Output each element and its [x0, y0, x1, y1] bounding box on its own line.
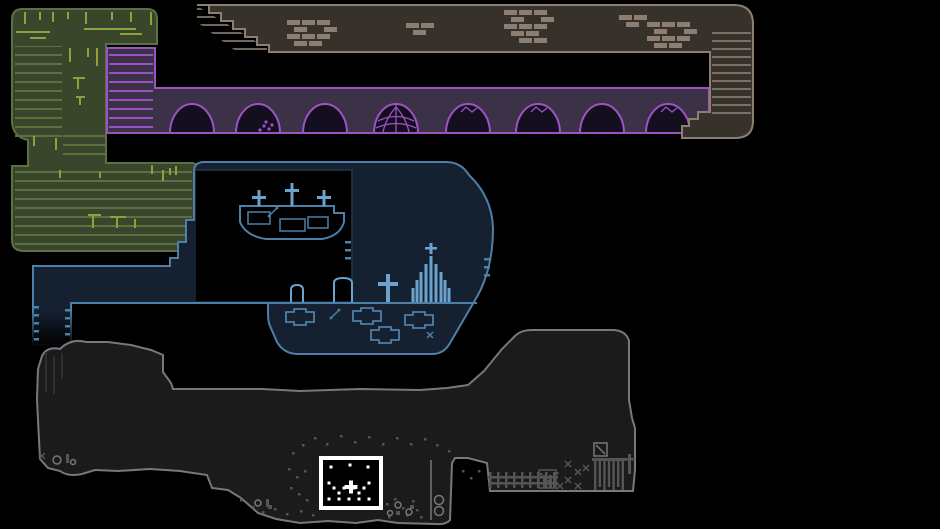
purple-hatch-arm [109, 51, 153, 130]
brick [654, 29, 667, 34]
brick [511, 31, 524, 36]
green-hatch-band [15, 167, 192, 249]
cathedral-spire [425, 264, 428, 302]
ladder-dash [484, 266, 490, 269]
rubble-dot [274, 508, 277, 511]
brick [317, 34, 330, 39]
rubble-dot [288, 468, 291, 471]
rubble-dot [340, 435, 343, 438]
rubble-dot [394, 498, 397, 501]
vine [87, 48, 89, 57]
fence-post [497, 472, 500, 488]
bone-post [266, 499, 269, 507]
marker-dot [348, 498, 351, 501]
vine [39, 12, 41, 20]
rubble-dot [292, 452, 295, 455]
rubble-dot [540, 473, 543, 476]
rubble-dot [296, 476, 299, 479]
rubble-dot [386, 503, 389, 506]
brick [519, 24, 532, 29]
cross [285, 189, 299, 192]
player-plus [345, 485, 358, 489]
brick [677, 36, 690, 41]
vine [69, 48, 71, 62]
marker-dot [338, 498, 341, 501]
marker-dot [328, 498, 331, 501]
vine [77, 78, 79, 89]
grave-cross [628, 454, 631, 474]
brick [511, 17, 524, 22]
rubble-dot [304, 470, 307, 473]
fence-post [513, 472, 516, 488]
ladder-dash [65, 309, 70, 312]
brick [421, 23, 434, 28]
cathedral-spire [440, 272, 443, 302]
fence-post [521, 472, 524, 488]
rubble-dot [396, 437, 399, 440]
brick [504, 10, 517, 15]
vine [150, 12, 152, 25]
brick [677, 22, 690, 27]
cathedral-spire [448, 288, 451, 302]
vine [130, 12, 132, 22]
vine [24, 12, 26, 24]
brick [302, 34, 315, 39]
bone [338, 309, 341, 312]
vine [116, 217, 118, 228]
fence-post [529, 472, 532, 488]
vine [59, 170, 61, 178]
rubble-pile [258, 128, 261, 131]
rubble-dot [314, 437, 317, 440]
bone-post [66, 454, 69, 463]
marker-dot [367, 466, 370, 469]
crypt-slot [549, 475, 552, 488]
brick [324, 27, 337, 32]
current-room-marker [321, 458, 381, 508]
vine [96, 48, 98, 66]
rubble-dot [416, 509, 419, 512]
brick [626, 22, 639, 27]
vine [92, 215, 94, 228]
green-hatch-neck [63, 134, 105, 161]
rubble-pile [262, 124, 265, 127]
cathedral-spire [416, 280, 419, 302]
brick [519, 38, 532, 43]
marker-dot [338, 492, 341, 495]
brick [534, 38, 547, 43]
gate-bar [612, 461, 614, 490]
fence-post [505, 472, 508, 488]
rubble-dot [306, 499, 309, 502]
rubble-dot [402, 507, 405, 510]
vine [52, 12, 54, 22]
cathedral-spire [420, 272, 423, 302]
ladder-dash [34, 338, 39, 341]
brick [634, 15, 647, 20]
brick [519, 10, 532, 15]
brick [309, 41, 322, 46]
ladder-dash [65, 333, 70, 336]
cross [291, 183, 294, 206]
grave-cross [378, 282, 398, 286]
bone [276, 207, 279, 210]
gate-bar [608, 461, 610, 487]
ladder-dash [345, 257, 351, 260]
rubble-dot [420, 516, 423, 519]
marker-dot [330, 466, 333, 469]
brick [287, 34, 300, 39]
rubble-dot [478, 470, 481, 473]
brick [317, 20, 330, 25]
fence-post [489, 472, 492, 488]
rubble-dot [424, 438, 427, 441]
rubble-dot [262, 511, 265, 514]
bone [330, 317, 333, 320]
brick [294, 27, 307, 32]
ladder-dash [345, 249, 351, 252]
marker-dot [328, 482, 331, 485]
ladder-dash [484, 258, 490, 261]
brick [647, 36, 660, 41]
gate-bar [603, 461, 605, 490]
rubble-pile [267, 127, 270, 130]
rubble-dot [436, 444, 439, 447]
rubble-dot [412, 500, 415, 503]
vine [84, 28, 136, 30]
vine [16, 31, 50, 33]
gate-rail [592, 458, 626, 461]
rubble-dot [448, 450, 451, 453]
vine [151, 165, 153, 174]
rubble-dot [300, 510, 303, 513]
vine [85, 12, 87, 24]
grave-cross [624, 458, 635, 461]
brick [294, 41, 307, 46]
vine [33, 136, 35, 146]
brick [541, 17, 554, 22]
vine [162, 170, 164, 181]
marker-dot [368, 482, 371, 485]
rubble-pile [264, 120, 267, 123]
brick [504, 24, 517, 29]
stone-column-hatch [712, 28, 751, 114]
marker-dot [349, 464, 352, 467]
vine [79, 97, 81, 105]
gate-bar [617, 461, 619, 487]
fence-post [553, 472, 556, 488]
gate-bar [594, 461, 596, 490]
ladder-dash [34, 330, 39, 333]
rubble-dot [388, 516, 391, 519]
fence-rail [488, 482, 558, 485]
brick [526, 31, 539, 36]
cathedral-spire [412, 288, 415, 302]
world-map [0, 0, 940, 529]
fence-rail [488, 476, 558, 479]
rubble-dot [368, 436, 371, 439]
vine [134, 219, 136, 228]
green-hatch-left-column [15, 46, 62, 138]
cross [252, 196, 266, 199]
rubble-pile [270, 123, 273, 126]
ladder-dash [34, 314, 39, 317]
marker-dot [358, 498, 361, 501]
brick [534, 10, 547, 15]
ladder-dash [484, 274, 490, 277]
vine [175, 166, 177, 175]
brick [647, 22, 660, 27]
cathedral-spire [435, 264, 438, 302]
brick [669, 43, 682, 48]
bone [268, 215, 271, 218]
ladder-dash [65, 325, 70, 328]
gate-bar [599, 461, 601, 487]
brick [287, 20, 300, 25]
ladder-dash [34, 322, 39, 325]
rubble-dot [396, 511, 400, 515]
gate-bar [622, 461, 624, 490]
cathedral-cross [425, 247, 437, 250]
rubble-dot [470, 477, 473, 480]
rubble-dot [326, 443, 329, 446]
rubble-dot [290, 487, 293, 490]
cross [317, 196, 331, 199]
brick [684, 29, 697, 34]
marker-dot [333, 487, 336, 490]
rubble-dot [312, 514, 315, 517]
game-world-map-screen [0, 0, 940, 529]
marker-dot [363, 487, 366, 490]
rubble-dot [382, 443, 385, 446]
rubble-dot [286, 513, 289, 516]
ladder-dash [345, 241, 351, 244]
rubble-dot [354, 441, 357, 444]
ladder-dash [34, 306, 39, 309]
brick [654, 43, 667, 48]
cathedral-spire [430, 256, 433, 302]
rubble-dot [298, 493, 301, 496]
rubble-dot [410, 443, 413, 446]
rubble-dot [302, 444, 305, 447]
marker-dot [368, 498, 371, 501]
ladder-dash [65, 317, 70, 320]
vine [120, 33, 142, 35]
brick [302, 20, 315, 25]
crypt-slot [543, 475, 546, 488]
brick [413, 30, 426, 35]
brick [406, 23, 419, 28]
vine [55, 138, 57, 150]
marker-dot [358, 492, 361, 495]
vine [169, 168, 171, 175]
vine [111, 12, 113, 20]
brick [619, 15, 632, 20]
brick [662, 36, 675, 41]
grave-cross [386, 274, 390, 302]
brick [662, 22, 675, 27]
vine [99, 172, 101, 178]
cathedral-spire [444, 280, 447, 302]
brick [534, 24, 547, 29]
vine [67, 12, 69, 19]
rubble-dot [462, 470, 465, 473]
rubble-dot [410, 505, 414, 509]
vine [88, 214, 101, 216]
rubble-dot [252, 506, 255, 509]
vine [30, 37, 46, 39]
rubble-dot [240, 499, 243, 502]
